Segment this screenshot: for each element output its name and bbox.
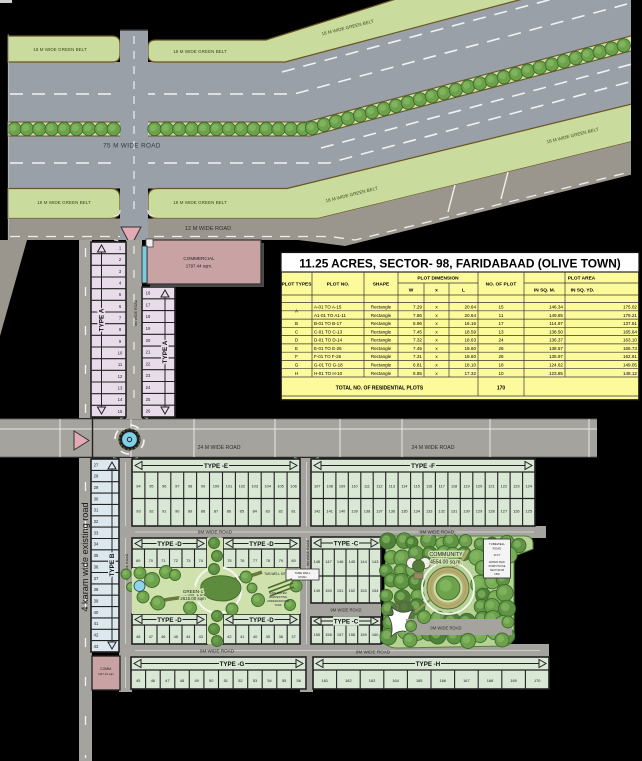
svg-text:15: 15 <box>118 409 123 414</box>
svg-text:156: 156 <box>325 632 332 637</box>
svg-text:F-01 TO F-26: F-01 TO F-26 <box>314 354 342 359</box>
svg-text:IN SQ. M.: IN SQ. M. <box>534 288 555 294</box>
svg-text:87: 87 <box>214 509 218 514</box>
svg-text:168: 168 <box>487 678 494 683</box>
svg-text:37: 37 <box>94 576 99 581</box>
svg-text:9M WIDE ROAD: 9M WIDE ROAD <box>198 530 233 535</box>
svg-text:COMM.: COMM. <box>100 667 112 671</box>
svg-text:B: B <box>295 321 298 326</box>
svg-text:23: 23 <box>146 373 151 378</box>
svg-text:121: 121 <box>488 484 495 489</box>
svg-text:162.61: 162.61 <box>623 354 637 359</box>
svg-text:W: W <box>409 288 414 294</box>
svg-text:69: 69 <box>136 558 140 563</box>
svg-text:162: 162 <box>345 678 352 683</box>
svg-text:38: 38 <box>94 587 99 592</box>
svg-text:12: 12 <box>118 374 123 379</box>
svg-text:110: 110 <box>351 484 358 489</box>
svg-text:31: 31 <box>94 508 99 513</box>
svg-text:81: 81 <box>291 509 295 514</box>
svg-text:153: 153 <box>360 588 367 593</box>
svg-text:E-01 TO E-26: E-01 TO E-26 <box>314 346 342 351</box>
svg-text:179.21: 179.21 <box>623 313 637 318</box>
svg-text:1117.44 sqm: 1117.44 sqm <box>98 672 114 676</box>
svg-text:46: 46 <box>151 678 155 683</box>
svg-text:38: 38 <box>279 634 283 639</box>
svg-text:10: 10 <box>498 371 504 376</box>
svg-text:149: 149 <box>314 588 321 593</box>
svg-text:Rectangle: Rectangle <box>371 371 392 376</box>
svg-text:137.51: 137.51 <box>623 321 637 326</box>
svg-text:18 M WIDE GREEN BELT: 18 M WIDE GREEN BELT <box>37 200 91 205</box>
svg-text:86: 86 <box>227 509 231 514</box>
svg-text:TYPE -E: TYPE -E <box>204 463 228 470</box>
svg-text:130: 130 <box>463 509 470 514</box>
svg-text:34: 34 <box>94 542 99 547</box>
svg-text:28: 28 <box>94 474 99 479</box>
svg-text:42: 42 <box>94 633 99 638</box>
svg-text:E: E <box>295 346 298 351</box>
svg-text:138.57: 138.57 <box>549 346 563 351</box>
svg-text:Rectangle: Rectangle <box>371 313 392 318</box>
svg-text:G: G <box>295 363 299 368</box>
svg-text:111: 111 <box>364 484 370 489</box>
svg-text:100: 100 <box>213 484 220 489</box>
svg-text:83: 83 <box>266 509 270 514</box>
svg-text:16: 16 <box>146 291 151 296</box>
svg-text:7.32: 7.32 <box>413 338 422 343</box>
svg-text:75 M WIDE ROAD: 75 M WIDE ROAD <box>103 143 161 150</box>
svg-text:169: 169 <box>510 678 517 683</box>
svg-text:127: 127 <box>501 509 508 514</box>
svg-text:51: 51 <box>224 678 228 683</box>
svg-text:Rectangle: Rectangle <box>371 354 392 359</box>
svg-text:134: 134 <box>414 509 421 514</box>
svg-text:76: 76 <box>240 558 244 563</box>
svg-text:43: 43 <box>199 634 203 639</box>
svg-text:TYPE -H: TYPE -H <box>416 661 441 668</box>
svg-text:PLOT NO.: PLOT NO. <box>327 282 350 288</box>
svg-text:35: 35 <box>94 553 99 558</box>
svg-text:ROAD: ROAD <box>493 547 503 551</box>
svg-text:97: 97 <box>175 484 179 489</box>
svg-text:149.85: 149.85 <box>549 313 563 318</box>
svg-text:95: 95 <box>149 484 153 489</box>
svg-text:148: 148 <box>314 559 321 564</box>
svg-text:COMMUNITY: COMMUNITY <box>429 552 463 558</box>
svg-text:29: 29 <box>94 485 99 490</box>
svg-text:135.97: 135.97 <box>549 354 563 359</box>
svg-text:170: 170 <box>534 678 541 683</box>
svg-text:24: 24 <box>146 385 151 390</box>
svg-text:A-01 TO A-15: A-01 TO A-15 <box>314 305 342 310</box>
svg-text:33: 33 <box>94 530 99 535</box>
svg-text:9M WIDE ROAD: 9M WIDE ROAD <box>306 539 310 566</box>
svg-text:122: 122 <box>501 484 508 489</box>
svg-text:41: 41 <box>94 621 99 626</box>
svg-text:165: 165 <box>416 678 423 683</box>
svg-text:TYPE -D: TYPE -D <box>157 617 182 624</box>
svg-text:13: 13 <box>118 385 123 390</box>
svg-text:26: 26 <box>146 409 151 414</box>
svg-text:114: 114 <box>401 484 408 489</box>
svg-text:107: 107 <box>314 484 321 489</box>
svg-text:158: 158 <box>349 632 356 637</box>
svg-text:126: 126 <box>513 509 520 514</box>
svg-text:SHAPE: SHAPE <box>373 282 390 288</box>
svg-text:C-01 TO C-13: C-01 TO C-13 <box>314 329 343 334</box>
svg-text:106: 106 <box>290 484 297 489</box>
svg-text:71: 71 <box>161 558 165 563</box>
svg-text:7.31: 7.31 <box>413 354 422 359</box>
svg-text:x: x <box>435 289 438 294</box>
svg-text:9M WIDE ROAD: 9M WIDE ROAD <box>330 608 361 613</box>
svg-text:125: 125 <box>526 509 533 514</box>
svg-text:151: 151 <box>337 588 344 593</box>
svg-text:155: 155 <box>314 632 321 637</box>
svg-text:9M WIDE ROAD: 9M WIDE ROAD <box>430 626 461 631</box>
svg-text:18.59: 18.59 <box>465 329 477 334</box>
svg-text:H-01 TO H-10: H-01 TO H-10 <box>314 371 343 376</box>
svg-text:117: 117 <box>439 484 445 489</box>
svg-text:TYPE A: TYPE A <box>99 308 106 331</box>
svg-text:TYPE -G: TYPE -G <box>220 661 245 668</box>
svg-text:53: 53 <box>253 678 257 683</box>
svg-text:129: 129 <box>476 509 483 514</box>
svg-text:TANK: TANK <box>274 603 281 607</box>
svg-text:9M WIDE ROAD: 9M WIDE ROAD <box>134 299 138 326</box>
svg-text:18: 18 <box>498 363 504 368</box>
svg-text:TYPE -D: TYPE -D <box>249 617 274 624</box>
svg-text:1797.44 sqm.: 1797.44 sqm. <box>186 264 213 269</box>
svg-text:147: 147 <box>325 559 332 564</box>
svg-text:164: 164 <box>392 678 399 683</box>
svg-text:PUMP HOUSE: PUMP HOUSE <box>489 565 506 568</box>
svg-text:144: 144 <box>360 559 367 564</box>
svg-text:89: 89 <box>188 509 192 514</box>
svg-text:45: 45 <box>174 634 178 639</box>
svg-text:40: 40 <box>94 610 99 615</box>
svg-text:18.63: 18.63 <box>465 338 477 343</box>
svg-text:11: 11 <box>118 362 123 367</box>
svg-text:56: 56 <box>297 678 301 683</box>
svg-text:TYPE A: TYPE A <box>162 340 169 363</box>
svg-text:7.45: 7.45 <box>413 329 422 334</box>
svg-text:123: 123 <box>513 484 520 489</box>
svg-text:88: 88 <box>201 509 205 514</box>
svg-text:7.45: 7.45 <box>413 346 422 351</box>
svg-text:99: 99 <box>201 484 205 489</box>
svg-text:48: 48 <box>136 634 140 639</box>
svg-text:2615.00 sqm: 2615.00 sqm <box>180 596 206 601</box>
svg-text:TYPE B: TYPE B <box>109 553 116 576</box>
svg-text:113: 113 <box>389 484 395 489</box>
svg-text:101: 101 <box>226 484 233 489</box>
svg-text:GREEN-1: GREEN-1 <box>183 589 204 594</box>
svg-text:145: 145 <box>349 559 356 564</box>
svg-text:TYPE -D: TYPE -D <box>249 541 274 548</box>
svg-text:L: L <box>462 288 465 294</box>
svg-text:17: 17 <box>146 302 151 307</box>
svg-text:39: 39 <box>266 634 270 639</box>
svg-text:166: 166 <box>440 678 447 683</box>
svg-text:G-01 TO G-18: G-01 TO G-18 <box>314 363 343 368</box>
svg-text:149.05: 149.05 <box>623 363 637 368</box>
svg-text:96: 96 <box>162 484 166 489</box>
svg-text:85: 85 <box>240 509 244 514</box>
svg-text:10: 10 <box>118 350 123 355</box>
svg-text:4554.00 sq.m.: 4554.00 sq.m. <box>430 560 462 566</box>
svg-text:140: 140 <box>339 509 346 514</box>
svg-text:18.60: 18.60 <box>465 354 477 359</box>
svg-text:12 M WIDE ROAD: 12 M WIDE ROAD <box>185 226 231 232</box>
svg-text:PLOT AREA: PLOT AREA <box>568 276 596 282</box>
svg-text:F: F <box>295 354 298 359</box>
svg-text:18 M WIDE GREEN BELT: 18 M WIDE GREEN BELT <box>173 49 227 54</box>
svg-text:138.50: 138.50 <box>549 329 563 334</box>
svg-text:4 karam wide existing road: 4 karam wide existing road <box>80 502 90 611</box>
svg-text:82: 82 <box>278 509 282 514</box>
svg-text:49: 49 <box>194 678 198 683</box>
svg-text:30: 30 <box>94 496 99 501</box>
svg-text:20.64: 20.64 <box>465 305 477 310</box>
svg-text:141: 141 <box>326 509 333 514</box>
svg-text:24 M WIDE ROAD: 24 M WIDE ROAD <box>412 445 455 451</box>
svg-text:175.02: 175.02 <box>623 305 637 310</box>
svg-text:146.34: 146.34 <box>549 305 563 310</box>
svg-text:102: 102 <box>239 484 246 489</box>
svg-text:116: 116 <box>426 484 432 489</box>
svg-text:B-01 TO B-17: B-01 TO B-17 <box>314 321 342 326</box>
svg-text:52: 52 <box>238 678 242 683</box>
svg-text:115: 115 <box>414 484 420 489</box>
svg-text:37: 37 <box>291 634 295 639</box>
svg-text:17.32: 17.32 <box>465 371 477 376</box>
svg-text:98: 98 <box>188 484 192 489</box>
svg-text:79: 79 <box>279 558 283 563</box>
svg-text:157: 157 <box>337 632 344 637</box>
svg-text:24 M WIDE ROAD: 24 M WIDE ROAD <box>198 445 241 451</box>
svg-text:41: 41 <box>240 634 244 639</box>
svg-text:WATER TANK: WATER TANK <box>489 561 505 564</box>
svg-text:47: 47 <box>149 634 153 639</box>
svg-text:Rectangle: Rectangle <box>371 329 392 334</box>
svg-text:138: 138 <box>364 509 371 514</box>
svg-text:Rectangle: Rectangle <box>371 363 392 368</box>
svg-text:6.85: 6.85 <box>413 371 422 376</box>
svg-text:TYPE -C: TYPE -C <box>334 540 359 547</box>
svg-text:39: 39 <box>94 599 99 604</box>
svg-text:25: 25 <box>146 397 151 402</box>
svg-text:148.12: 148.12 <box>623 371 637 376</box>
svg-text:104: 104 <box>264 484 271 489</box>
svg-text:72: 72 <box>174 558 178 563</box>
svg-text:136: 136 <box>389 509 396 514</box>
svg-text:18 M WIDE GREEN BELT: 18 M WIDE GREEN BELT <box>33 47 87 52</box>
svg-text:112: 112 <box>376 484 382 489</box>
svg-text:48: 48 <box>180 678 184 683</box>
svg-text:124.62: 124.62 <box>549 363 563 368</box>
svg-text:78: 78 <box>266 558 270 563</box>
svg-text:20.64: 20.64 <box>465 313 477 318</box>
svg-text:103: 103 <box>252 484 259 489</box>
svg-text:47: 47 <box>165 678 169 683</box>
svg-text:TYPE -C: TYPE -C <box>334 618 359 625</box>
svg-text:135: 135 <box>401 509 408 514</box>
svg-text:154: 154 <box>372 588 379 593</box>
svg-text:TOTAL NO. OF RESIDENTIAL PLOTS: TOTAL NO. OF RESIDENTIAL PLOTS <box>336 386 424 392</box>
svg-text:14: 14 <box>118 397 123 402</box>
svg-text:163.10: 163.10 <box>623 338 637 343</box>
svg-text:137: 137 <box>376 509 383 514</box>
svg-text:40 FT: 40 FT <box>494 553 501 557</box>
svg-text:9M WIDE ROAD: 9M WIDE ROAD <box>356 650 391 655</box>
svg-text:93: 93 <box>136 509 140 514</box>
svg-text:105: 105 <box>277 484 284 489</box>
svg-text:18: 18 <box>146 314 151 319</box>
svg-text:124: 124 <box>526 484 533 489</box>
svg-text:6.81: 6.81 <box>413 363 422 368</box>
svg-text:123.85: 123.85 <box>549 371 563 376</box>
svg-text:SECTOR-98: SECTOR-98 <box>490 569 505 572</box>
svg-text:TYPE -D: TYPE -D <box>157 541 182 548</box>
svg-text:16.16: 16.16 <box>465 321 477 326</box>
svg-text:109: 109 <box>339 484 346 489</box>
svg-text:43: 43 <box>94 644 99 649</box>
svg-text:13: 13 <box>498 329 504 334</box>
svg-text:32: 32 <box>94 519 99 524</box>
svg-text:143: 143 <box>372 559 379 564</box>
svg-text:163: 163 <box>369 678 376 683</box>
svg-text:150: 150 <box>325 588 332 593</box>
svg-text:133: 133 <box>426 509 433 514</box>
svg-text:114.97: 114.97 <box>549 321 563 326</box>
svg-text:TYPE -F: TYPE -F <box>411 463 435 470</box>
svg-text:167: 167 <box>463 678 470 683</box>
svg-text:26: 26 <box>498 354 504 359</box>
svg-text:118: 118 <box>451 484 457 489</box>
svg-text:ROAD: ROAD <box>298 575 306 579</box>
svg-text:160: 160 <box>372 632 379 637</box>
svg-text:PLOT DIMENSION: PLOT DIMENSION <box>417 276 459 282</box>
svg-text:PLOT TYPES: PLOT TYPES <box>282 282 313 288</box>
svg-text:165.73: 165.73 <box>623 346 637 351</box>
svg-text:120: 120 <box>476 484 483 489</box>
svg-text:27: 27 <box>94 462 99 467</box>
svg-text:46: 46 <box>161 634 165 639</box>
svg-text:11.25 ACRES, SECTOR- 98, FARID: 11.25 ACRES, SECTOR- 98, FARIDABAAD (OLI… <box>299 257 621 271</box>
svg-text:55: 55 <box>282 678 286 683</box>
svg-text:22: 22 <box>146 361 151 366</box>
svg-text:142: 142 <box>314 509 321 514</box>
svg-text:A1-01 TO A1-11: A1-01 TO A1-11 <box>314 313 347 318</box>
svg-text:20: 20 <box>146 338 151 343</box>
svg-text:H: H <box>295 371 298 376</box>
svg-text:139: 139 <box>351 509 358 514</box>
svg-text:75: 75 <box>227 558 231 563</box>
svg-text:17: 17 <box>498 321 504 326</box>
svg-text:146: 146 <box>337 559 344 564</box>
svg-text:D-01 TO D-14: D-01 TO D-14 <box>314 338 343 343</box>
svg-text:128: 128 <box>488 509 495 514</box>
svg-text:Rectangle: Rectangle <box>371 338 392 343</box>
svg-text:24: 24 <box>498 338 504 343</box>
svg-text:108: 108 <box>326 484 333 489</box>
svg-text:11: 11 <box>499 313 504 318</box>
svg-text:92: 92 <box>149 509 153 514</box>
svg-text:COMMERCIAL: COMMERCIAL <box>183 256 215 261</box>
svg-text:TUBEWELL: TUBEWELL <box>489 542 506 546</box>
svg-text:15: 15 <box>498 305 504 310</box>
svg-text:9M WIDE ROAD: 9M WIDE ROAD <box>420 530 455 535</box>
svg-text:73: 73 <box>186 558 190 563</box>
svg-text:7.86: 7.86 <box>413 313 422 318</box>
svg-text:161: 161 <box>322 678 329 683</box>
svg-text:TUB.WELL SITE: TUB.WELL SITE <box>264 572 288 576</box>
svg-text:159: 159 <box>360 632 367 637</box>
svg-text:152: 152 <box>349 588 356 593</box>
svg-text:21: 21 <box>146 350 151 355</box>
svg-text:165.64: 165.64 <box>623 329 637 334</box>
svg-text:FBD: FBD <box>495 573 500 576</box>
svg-text:18 M WIDE GREEN BELT: 18 M WIDE GREEN BELT <box>173 200 227 205</box>
svg-text:7.29: 7.29 <box>413 305 422 310</box>
svg-text:18.60: 18.60 <box>465 346 477 351</box>
svg-text:Rectangle: Rectangle <box>371 305 392 310</box>
svg-text:119: 119 <box>463 484 469 489</box>
svg-text:26: 26 <box>498 346 504 351</box>
svg-text:IN SQ. YD.: IN SQ. YD. <box>571 288 595 294</box>
svg-text:170: 170 <box>497 386 506 392</box>
svg-text:6.96: 6.96 <box>413 321 422 326</box>
svg-text:9M WIDE ROAD: 9M WIDE ROAD <box>200 649 235 654</box>
svg-text:132: 132 <box>438 509 445 514</box>
svg-text:42: 42 <box>227 634 231 639</box>
svg-text:NO. OF PLOT: NO. OF PLOT <box>486 282 517 288</box>
svg-text:19: 19 <box>146 326 151 331</box>
svg-text:Rectangle: Rectangle <box>371 321 392 326</box>
svg-text:45: 45 <box>136 678 140 683</box>
svg-text:36: 36 <box>94 564 99 569</box>
svg-text:Rectangle: Rectangle <box>371 346 392 351</box>
svg-text:18.10: 18.10 <box>465 363 477 368</box>
svg-text:77: 77 <box>253 558 257 563</box>
svg-text:131: 131 <box>451 509 458 514</box>
svg-text:136.37: 136.37 <box>549 338 563 343</box>
svg-text:91: 91 <box>162 509 166 514</box>
